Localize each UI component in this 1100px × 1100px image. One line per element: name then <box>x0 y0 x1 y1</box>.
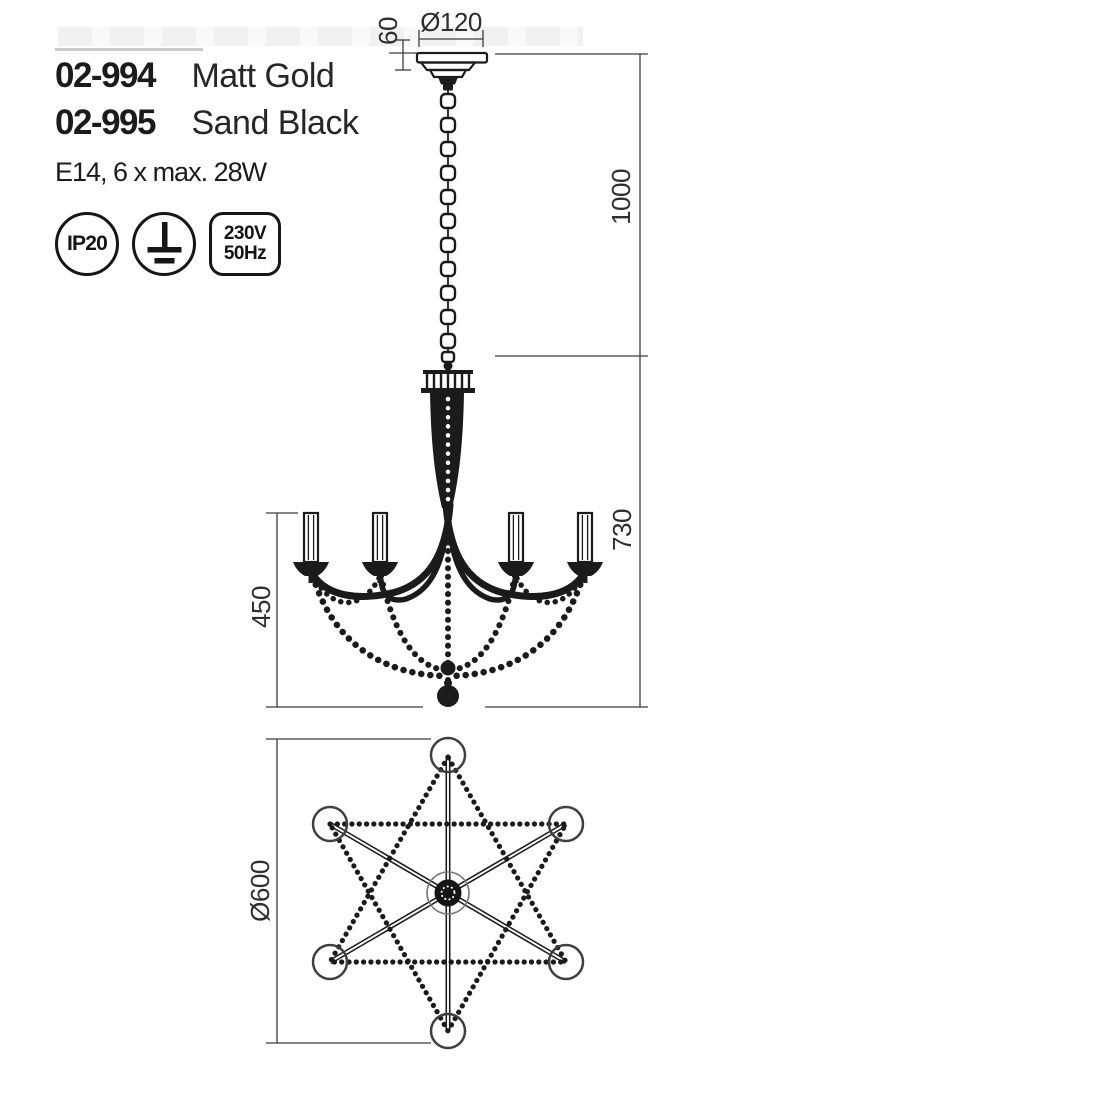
canopy <box>417 53 487 91</box>
candle <box>498 513 534 583</box>
dimension-arm-section-height: 450 <box>246 586 276 628</box>
technical-drawing: Ø120 60 1000 730 450 Ø600 <box>0 0 1100 1100</box>
dimension-canopy-height: 60 <box>373 17 403 45</box>
dimension-fixture-diameter: Ø600 <box>245 860 275 922</box>
suspension-chain <box>441 90 455 362</box>
page-root: { "products": [ { "code": "02-994", "fin… <box>0 0 1100 1100</box>
dimension-canopy-diameter: Ø120 <box>420 7 482 37</box>
bead-knot <box>441 661 456 676</box>
front-view <box>293 53 603 707</box>
dimension-suspension-length: 1000 <box>606 169 636 225</box>
column <box>430 393 464 508</box>
dimension-body-height: 730 <box>607 509 637 551</box>
candle <box>362 513 398 583</box>
top-view <box>313 738 583 1048</box>
finial-ball <box>437 685 459 707</box>
crown <box>421 362 475 394</box>
